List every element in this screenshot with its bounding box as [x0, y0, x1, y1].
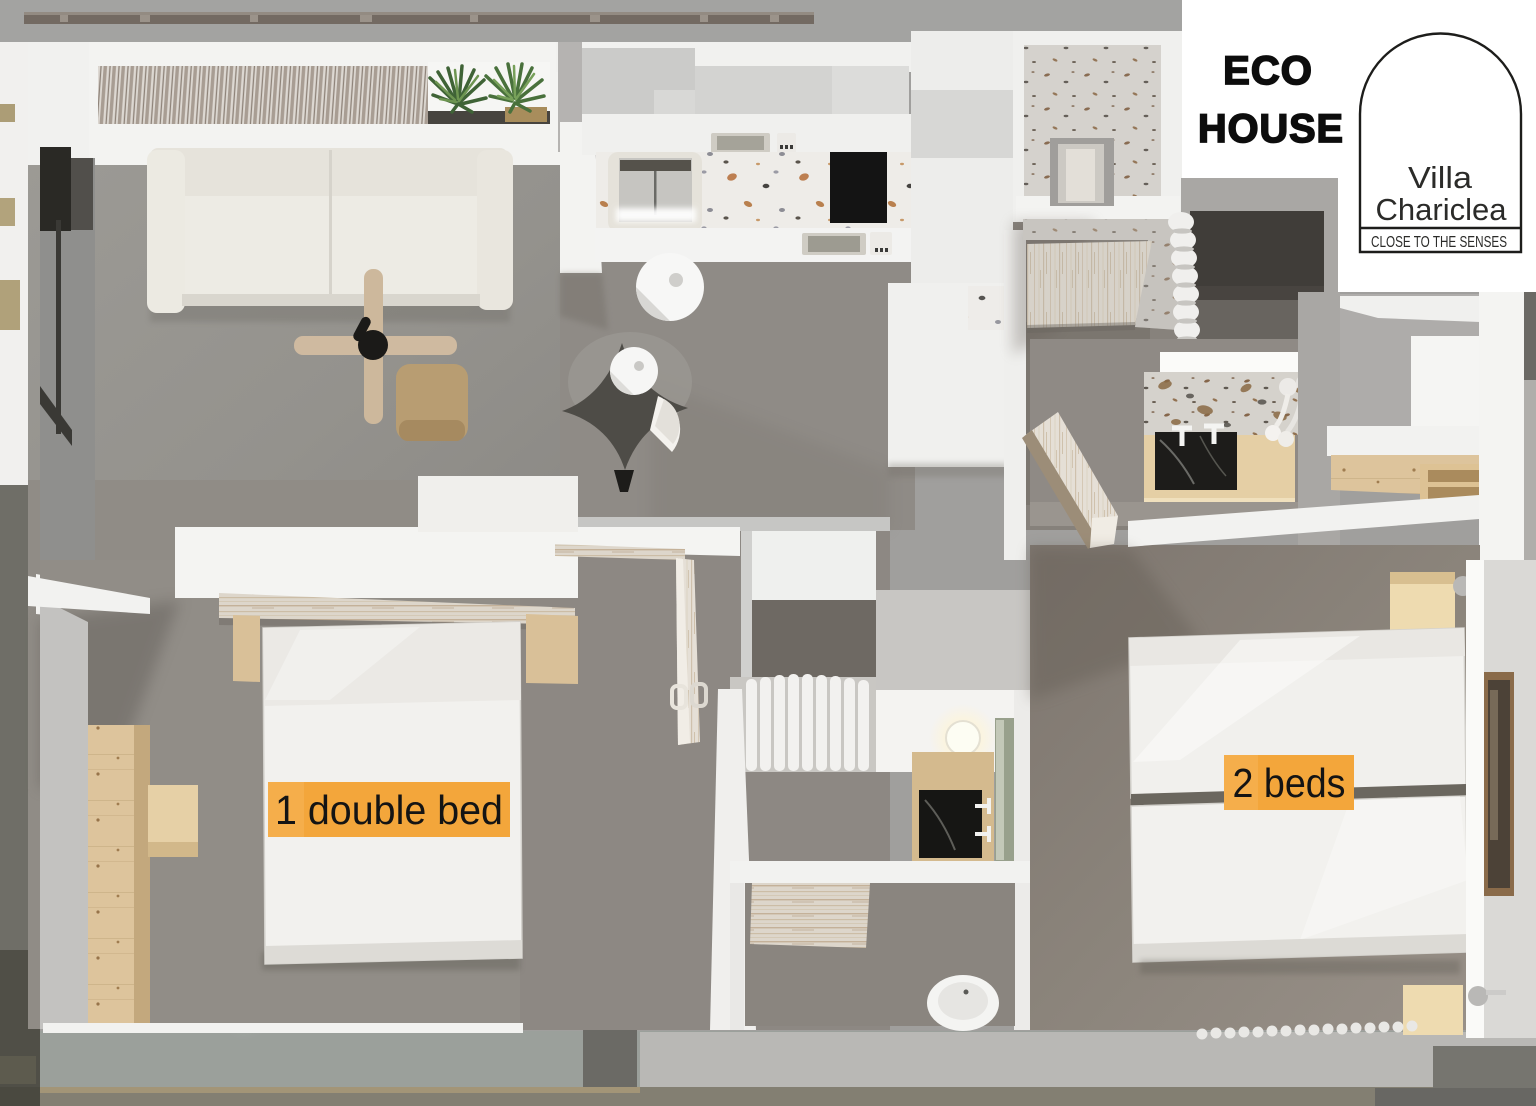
svg-text:CLOSE TO THE SENSES: CLOSE TO THE SENSES — [1371, 234, 1507, 251]
svg-text:2 beds: 2 beds — [1233, 760, 1346, 806]
svg-text:Villa: Villa — [1408, 160, 1473, 195]
svg-text:Chariclea: Chariclea — [1376, 192, 1508, 227]
svg-text:ECO: ECO — [1223, 49, 1313, 93]
svg-text:HOUSE: HOUSE — [1198, 107, 1344, 151]
svg-text:1 double bed: 1 double bed — [275, 787, 503, 833]
